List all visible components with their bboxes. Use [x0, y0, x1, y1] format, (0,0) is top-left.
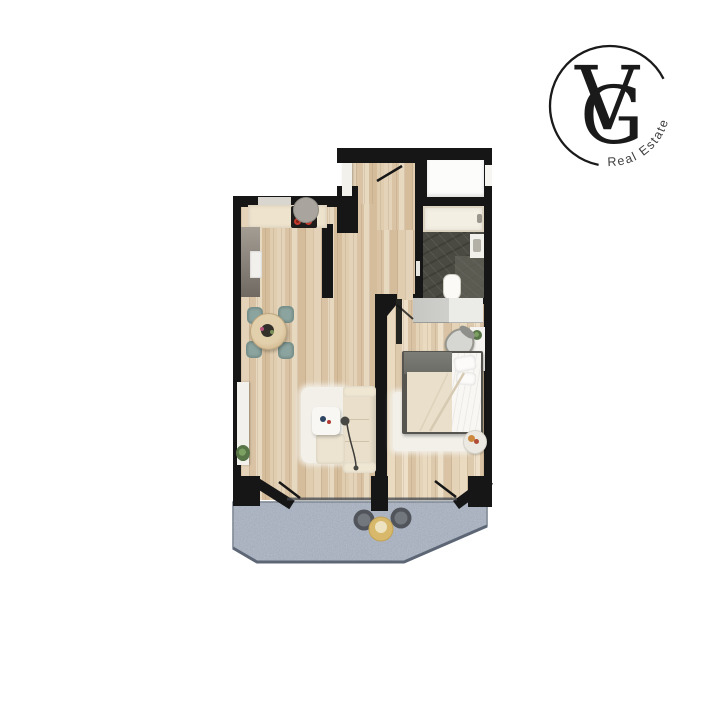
toilet — [443, 274, 461, 301]
wall-bottom-center-pillar — [371, 476, 388, 511]
closet-window — [485, 165, 492, 186]
wall-right-lower — [484, 294, 492, 488]
wall-closet-bottom — [421, 197, 484, 206]
balcony-edge — [233, 526, 487, 562]
centerpiece-flower — [260, 327, 264, 331]
wall-kitchen-fin — [322, 224, 333, 298]
wardrobe-right — [449, 298, 483, 323]
wall-living-bedroom-divider — [375, 294, 387, 488]
balcony-chair-right — [391, 508, 412, 529]
wall-bottom-left-block — [233, 476, 260, 506]
coffee-table — [312, 407, 340, 435]
bed-pillow — [455, 371, 476, 386]
balcony-chair-left — [354, 510, 375, 531]
bedroom-door-leaf — [396, 299, 402, 344]
floor-plant — [236, 445, 250, 461]
bathroom-door-handle — [416, 261, 420, 276]
bathtub — [423, 206, 484, 232]
coffee-table-decor — [320, 416, 326, 422]
balcony-floor — [233, 502, 487, 562]
bed-headboard — [404, 352, 452, 374]
pet-bowl-contents — [474, 439, 479, 444]
range-hood — [293, 197, 319, 223]
centerpiece-flower — [270, 330, 274, 334]
logo-monogram-g: G — [580, 69, 644, 162]
logo-monogram-v: V — [574, 47, 640, 150]
page-background: V G Real Estate — [0, 0, 720, 720]
sofa — [343, 386, 376, 473]
fridge — [250, 251, 262, 278]
coffee-table-decor — [327, 420, 331, 424]
sofa-armrest-bottom — [343, 462, 376, 473]
bathtub-faucet — [477, 214, 482, 223]
sofa-cushion-seam — [345, 419, 369, 420]
logo-tagline: Real Estate — [607, 117, 671, 170]
wall-bottom-right-block — [468, 476, 492, 507]
ottoman — [316, 434, 345, 464]
sofa-cushion-seam — [345, 441, 369, 442]
entry-cabinet — [342, 163, 352, 196]
balcony-speckle-texture — [228, 498, 492, 566]
balcony-table — [369, 517, 393, 541]
wall-entry-top — [337, 148, 423, 163]
wardrobe-left — [413, 298, 449, 323]
logo-circle — [550, 46, 663, 165]
sofa-armrest-top — [343, 386, 376, 397]
wall-entry-bathroom — [415, 206, 423, 306]
washbasin — [473, 239, 481, 252]
closet-interior — [427, 160, 484, 197]
